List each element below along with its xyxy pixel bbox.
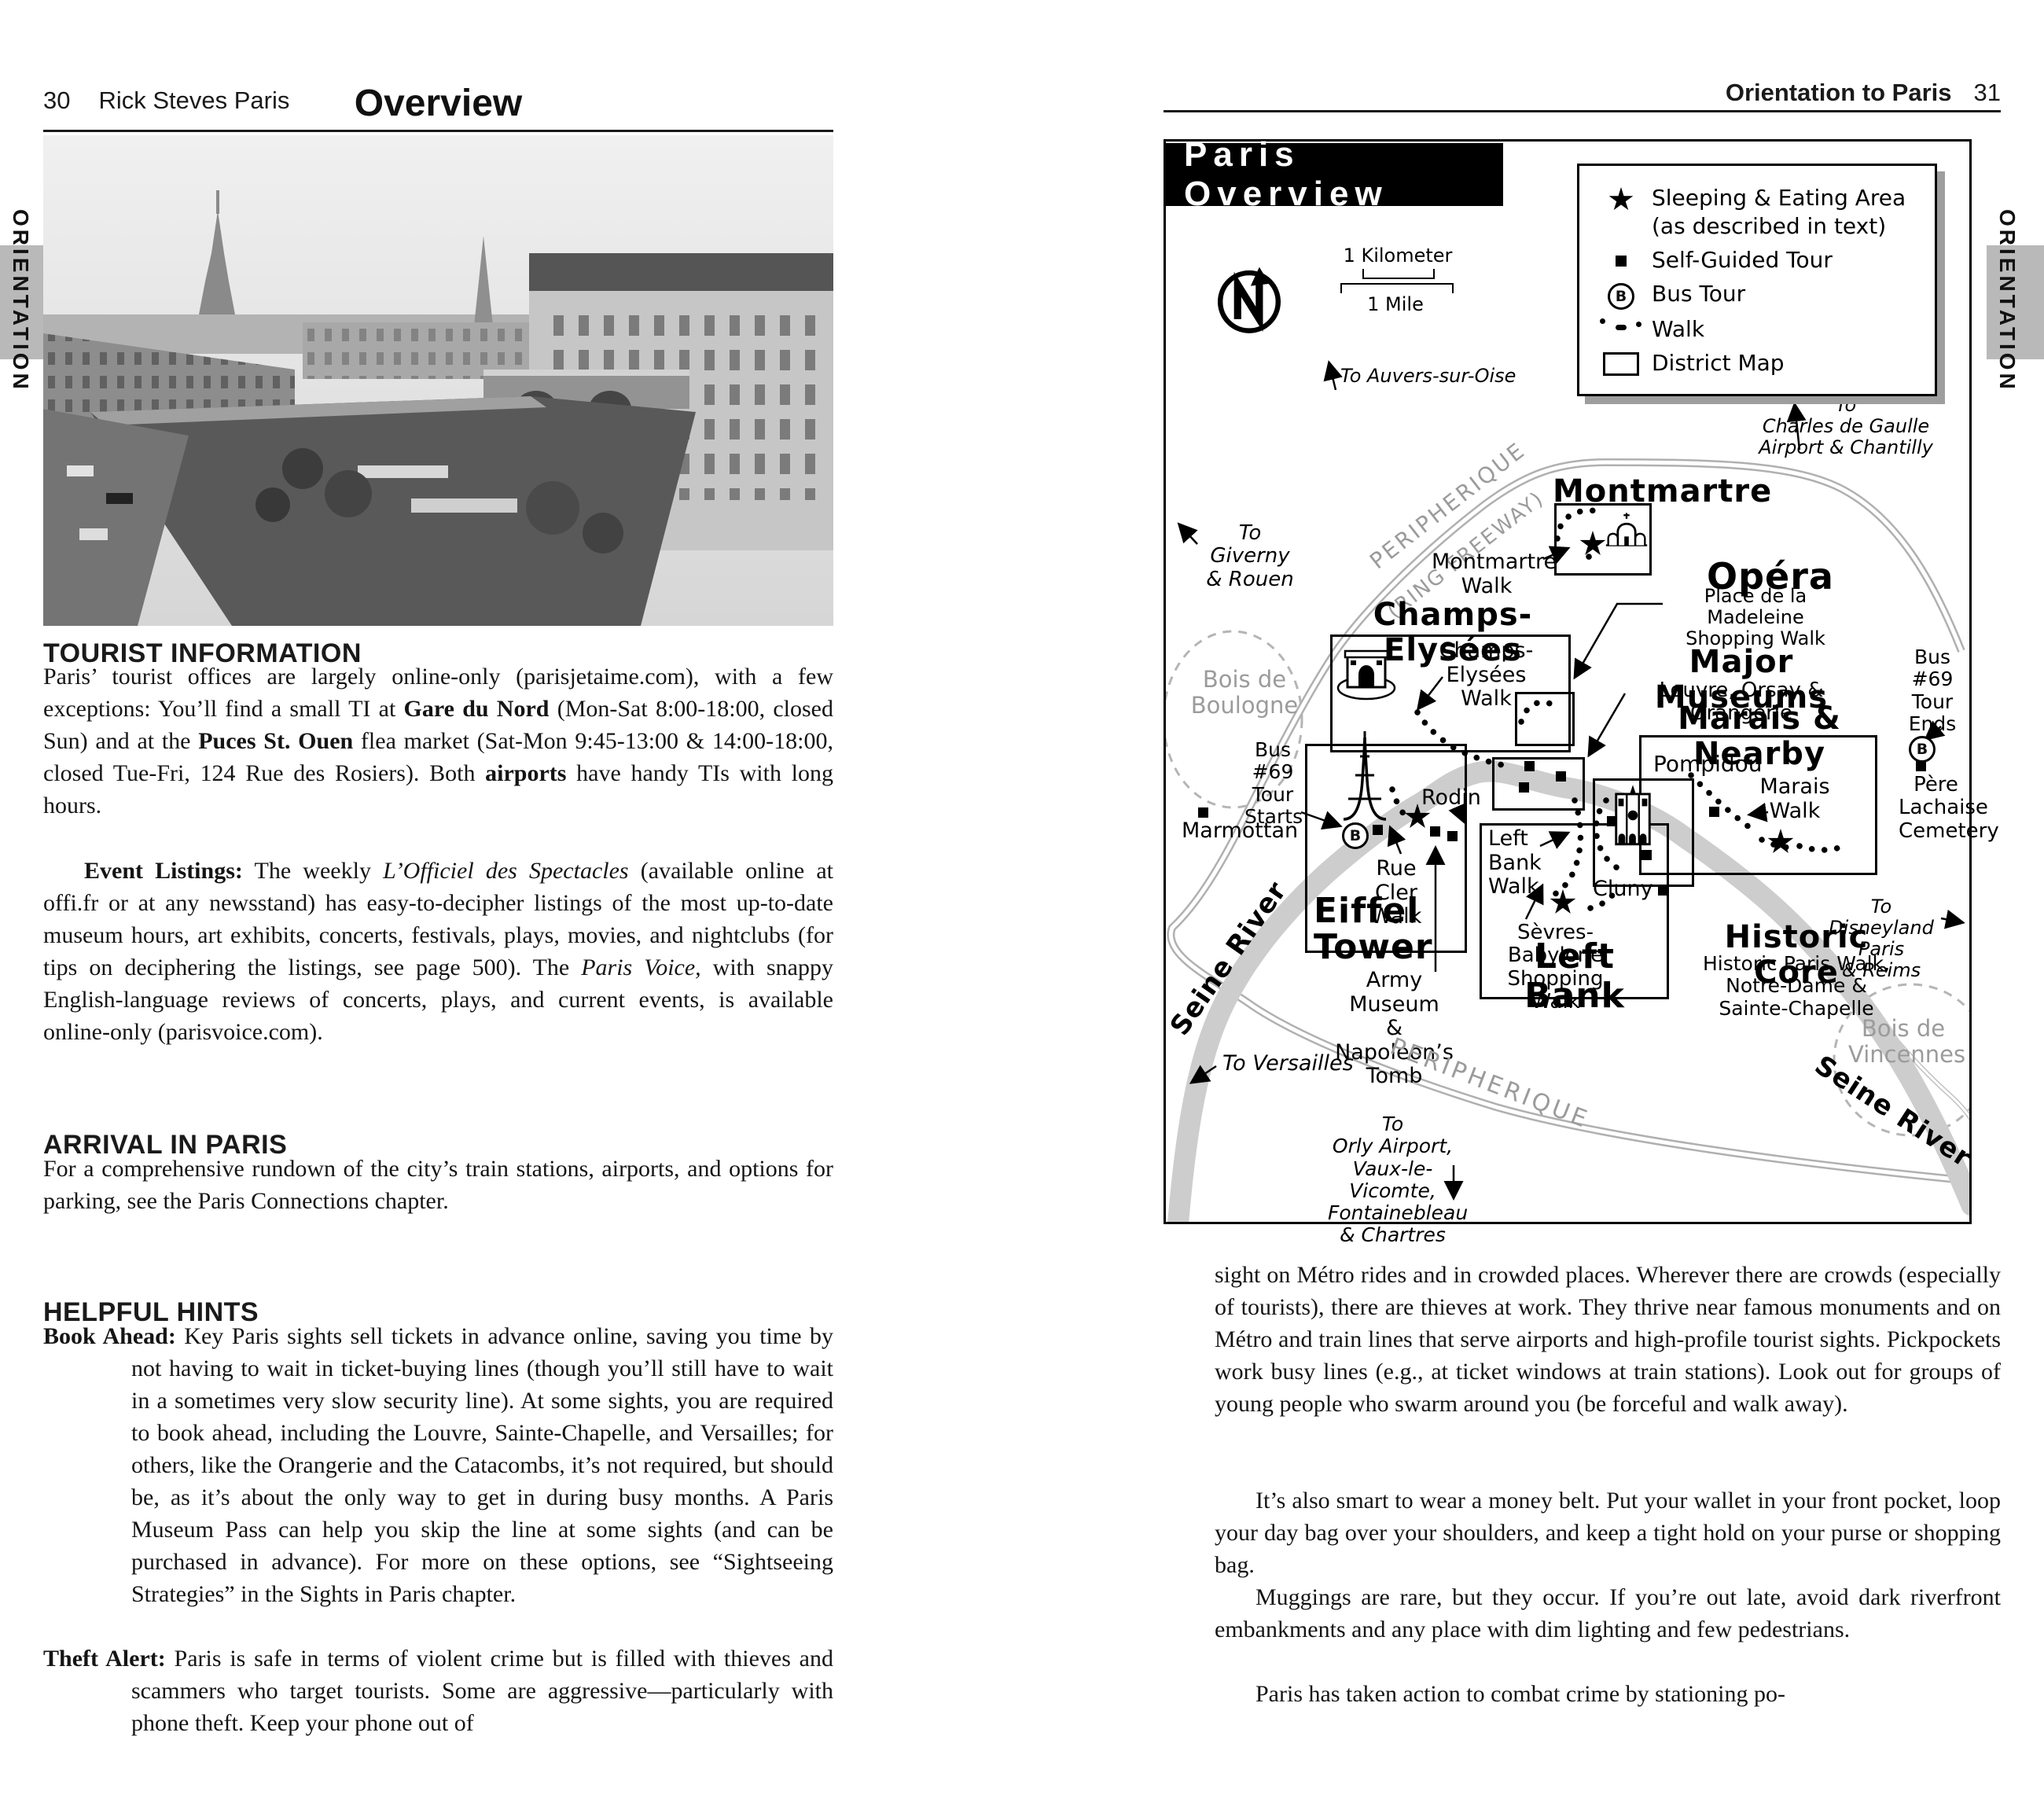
text-run-bold: Event Listings: [84, 858, 243, 884]
legend-bus-label: Bus Tour [1652, 280, 1745, 308]
cluny-text: Cluny [1593, 877, 1653, 901]
legend-row-walk: Walk [1590, 315, 1924, 344]
pere-lachaise-label: Père Lachaise Cemetery [1899, 774, 1973, 843]
major-museums-district-box [1492, 757, 1585, 811]
compass-north-icon [1213, 264, 1285, 340]
orsay-marker [1556, 771, 1566, 782]
left-bank-district-label: Left Bank [1504, 937, 1645, 1015]
rodin-marker [1447, 831, 1458, 841]
bois-de-vincennes-label: Bois de Vincennes [1848, 1016, 1958, 1068]
madeleine-walk-label: Place de la Madeleine Shopping Walk [1661, 586, 1850, 649]
book-ahead-paragraph: Book Ahead: Key Paris sights sell ticket… [43, 1320, 833, 1610]
map-legend: Sleeping & Eating Area(as described in t… [1577, 164, 1937, 396]
eiffel-tower-district-label: Eiffel Tower [1314, 893, 1433, 966]
legend-sleeping-label2: (as described in text) [1652, 212, 1906, 241]
paris-cityscape-photo [43, 135, 833, 626]
right-header-rule [1164, 110, 2001, 112]
legend-district-label: District Map [1652, 349, 1785, 377]
tourist-info-paragraph: Paris’ tourist offices are largely onlin… [43, 660, 833, 822]
eiffel-tour-marker [1373, 825, 1383, 835]
legend-row-sleeping: Sleeping & Eating Area(as described in t… [1590, 184, 1924, 241]
legend-tour-label: Self-Guided Tour [1652, 246, 1833, 274]
right-page-number: 31 [1974, 79, 2001, 106]
marmottan-label: Marmottan [1182, 819, 1298, 844]
orangerie-marker [1519, 782, 1529, 793]
legend-walk-icon [1590, 315, 1652, 331]
theft-continuation-paragraph: sight on Métro rides and in crowded plac… [1215, 1259, 2001, 1420]
to-versailles-label: To Versailles [1222, 1052, 1354, 1076]
arrival-paragraph: For a comprehensive rundown of the city’… [43, 1153, 833, 1217]
legend-row-bus: B Bus Tour [1590, 280, 1924, 310]
bus69-end-marker: B [1909, 736, 1936, 763]
to-auvers-label: To Auvers-sur-Oise [1340, 366, 1516, 387]
marmottan-marker [1198, 807, 1208, 818]
page-title: Overview [43, 82, 833, 125]
paris-overview-map: Paris Overview Sleeping & Eating Area(as… [1164, 139, 1972, 1224]
right-running-head: Orientation to Paris31 [1164, 79, 2001, 107]
muggings-paragraph: Muggings are rare, but they occur. If yo… [1215, 1581, 2001, 1646]
crime-action-paragraph: Paris has taken action to combat crime b… [1215, 1678, 2001, 1710]
left-bank-walk-label: Left Bank Walk [1488, 827, 1542, 899]
montmartre-walk-label: Montmartre Walk [1432, 550, 1542, 598]
eiffel-tower-icon [1340, 730, 1388, 826]
text-run: Key Paris sights sell tickets in advance… [131, 1323, 833, 1607]
marais-walk-label: Marais Walk [1752, 775, 1838, 823]
to-disneyland-label: To Disneyland Paris & Reims [1818, 896, 1944, 981]
map-title-banner: Paris Overview [1164, 143, 1503, 206]
event-listings-paragraph: Event Listings: The weekly L’Officiel de… [43, 855, 833, 1048]
book-spread: { "left_page": { "tab": "ORIENTATION", "… [0, 0, 2044, 1817]
to-cdg-label: To Charles de Gaulle Airport & Chantilly [1752, 395, 1940, 458]
legend-district-icon [1590, 349, 1652, 376]
kilometer-scale-bar [1362, 269, 1435, 279]
legend-bus-icon: B [1590, 280, 1652, 310]
legend-row-district: District Map [1590, 349, 1924, 377]
text-run-bold: airports [485, 760, 566, 786]
to-giverny-label: To Giverny & Rouen [1199, 522, 1301, 591]
notre-dame-marker [1641, 850, 1652, 860]
mile-scale-bar [1340, 283, 1454, 293]
legend-row-tour: Self-Guided Tour [1590, 246, 1924, 274]
chapter-title: Orientation to Paris [1726, 79, 1952, 106]
theft-alert-paragraph: Theft Alert: Paris is safe in terms of v… [43, 1642, 833, 1739]
montmartre-district-label: Montmartre [1553, 474, 1733, 509]
cluny-marker [1658, 885, 1668, 896]
bus69-starts-label: Bus #69 Tour Starts [1244, 739, 1301, 828]
louvre-marker [1524, 761, 1535, 771]
bus69-start-marker: B [1342, 822, 1369, 849]
legend-star-icon [1590, 184, 1652, 212]
money-belt-paragraph: It’s also smart to wear a money belt. Pu… [1215, 1484, 2001, 1581]
left-orientation-tab: ORIENTATION [8, 209, 33, 392]
left-header-rule [43, 130, 833, 132]
bois-de-boulogne-label: Bois de Boulogne [1186, 667, 1303, 719]
scale-mile-label: 1 Mile [1340, 294, 1450, 315]
to-orly-label: To Orly Airport, Vaux-le-Vicomte, Fontai… [1328, 1113, 1458, 1247]
text-run: Paris is safe in terms of violent crime … [131, 1646, 833, 1736]
sacre-coeur-icon [1605, 511, 1649, 550]
sainte-chapelle-marker [1607, 816, 1617, 826]
hint-lead: Theft Alert: [43, 1646, 166, 1672]
army-museum-marker [1430, 826, 1440, 837]
text-run-bold: Gare du Nord [404, 696, 550, 722]
hint-lead: Book Ahead: [43, 1323, 176, 1349]
text-run: The weekly [243, 858, 383, 884]
rodin-label: Rodin [1421, 786, 1481, 811]
pompidou-marker [1709, 807, 1719, 817]
legend-sleeping-label: Sleeping & Eating Area [1652, 184, 1906, 212]
cluny-label: Cluny [1593, 877, 1668, 902]
legend-square-icon [1590, 246, 1652, 267]
bus69-ends-label: Bus #69 Tour Ends [1905, 646, 1960, 735]
pompidou-label: Pompidou [1653, 752, 1763, 777]
right-orientation-tab: ORIENTATION [1994, 209, 2020, 392]
text-run-italic: L’Officiel des Spectacles [383, 858, 628, 884]
champs-elysees-walk-label: Champs-Elysées Walk [1406, 639, 1567, 712]
legend-walk-label: Walk [1652, 315, 1704, 344]
text-run-bold: Puces St. Ouen [198, 728, 353, 754]
text-run-italic: Paris Voice, [581, 954, 700, 980]
scale-kilometer-label: 1 Kilometer [1335, 245, 1461, 267]
